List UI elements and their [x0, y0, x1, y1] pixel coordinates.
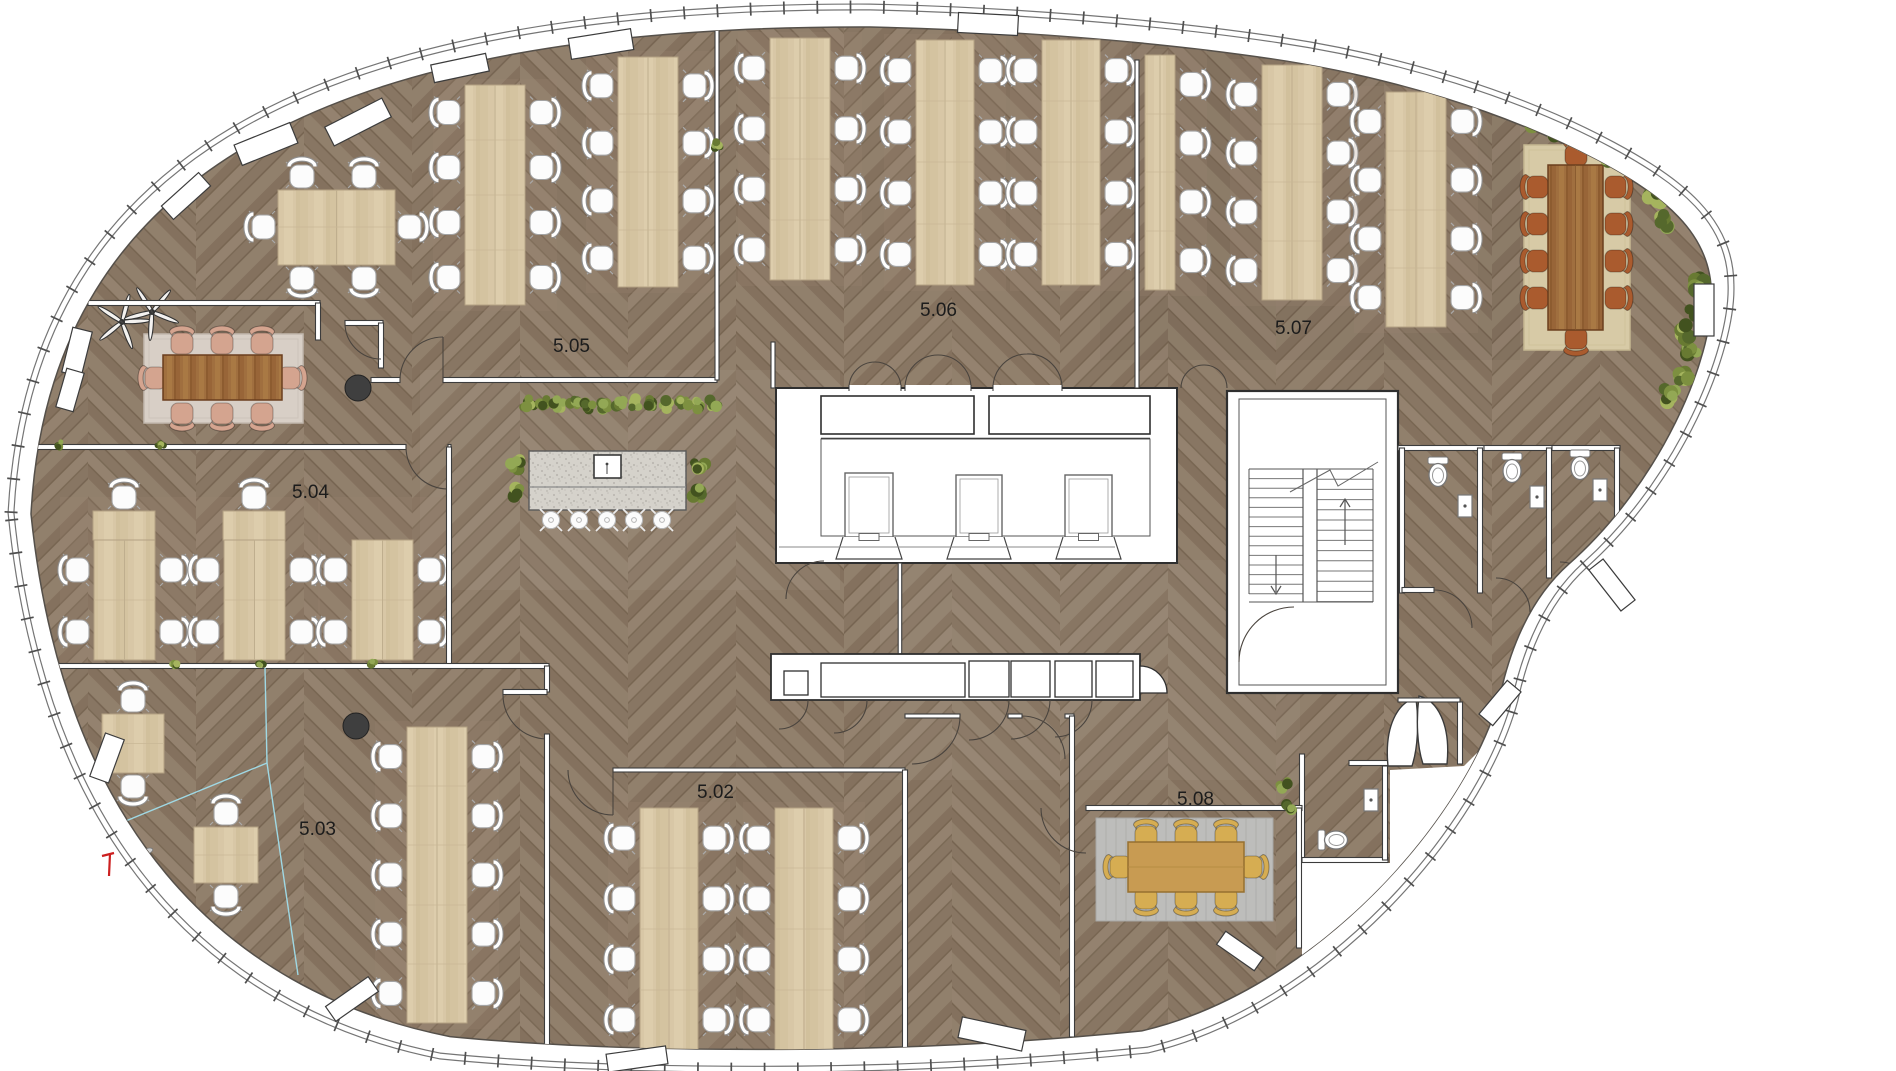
- svg-text:5.06: 5.06: [920, 300, 957, 321]
- svg-text:5.04: 5.04: [292, 482, 329, 503]
- svg-text:5.08: 5.08: [1177, 789, 1214, 810]
- svg-text:5.02: 5.02: [697, 782, 734, 803]
- svg-text:5.03: 5.03: [299, 819, 336, 840]
- svg-text:5.07: 5.07: [1275, 318, 1312, 339]
- svg-text:5.05: 5.05: [553, 336, 590, 357]
